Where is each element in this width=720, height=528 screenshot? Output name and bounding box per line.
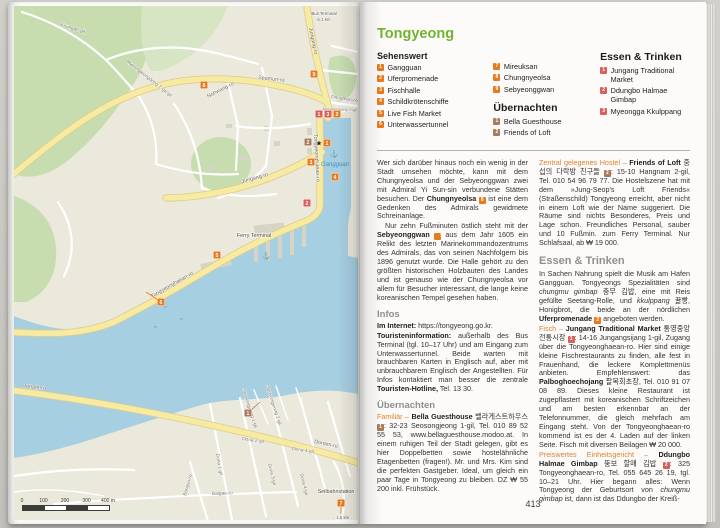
text-page: Tongyeong Sehenswert 1Gangguan2Uferprome… bbox=[360, 2, 706, 524]
scalebar-tick: 300 bbox=[82, 498, 90, 504]
text-run: 벨라게스트하우스 bbox=[473, 412, 528, 421]
text-run: Friends of Loft bbox=[629, 158, 681, 167]
svg-text:1: 1 bbox=[326, 141, 329, 147]
map-label: Bus Terminal bbox=[311, 11, 336, 16]
text-run: Touristeninformation: bbox=[377, 331, 451, 340]
legend-heading-sehenswert: Sehenswert bbox=[377, 51, 483, 61]
legend-item-label: Live Fish Market bbox=[388, 110, 442, 119]
legend-heading-essen: Essen & Trinken bbox=[600, 51, 690, 63]
legend-item-label: Jungang Traditional Market bbox=[611, 67, 690, 85]
section-heading: Übernachten bbox=[377, 400, 528, 411]
article-columns: Wer sich darüber hinaus noch ein wenig i… bbox=[377, 159, 690, 505]
legend-item-label: Chungnyeolsa bbox=[504, 74, 551, 83]
text-run: Palboghoechojang bbox=[539, 377, 603, 386]
text-run: https://tongyeong.go.kr. bbox=[416, 321, 493, 330]
scalebar-tick: 100 bbox=[39, 498, 47, 504]
map-marker-sight-2: 2 bbox=[333, 110, 341, 118]
sight-marker-icon: 8 bbox=[493, 74, 500, 81]
legend-item-label: Mireuksan bbox=[504, 63, 538, 72]
page-number: 413 bbox=[360, 499, 706, 509]
map-label: Ferry Terminal bbox=[237, 233, 271, 239]
scalebar-bar bbox=[22, 505, 110, 511]
map-marker-sight-9: 9 bbox=[310, 70, 318, 78]
map-marker-sight-1: ★1 bbox=[316, 139, 331, 147]
text-run: In Sachen Nahrung spielt die Musik am Ha… bbox=[539, 269, 690, 287]
legend-divider bbox=[377, 150, 690, 151]
legend-item: 2Ddungbo Halmae Gimbap bbox=[600, 87, 690, 105]
sight-marker-icon: 3 bbox=[377, 87, 384, 94]
paragraph: Nur zehn Fußminuten östlich steht mit de… bbox=[377, 222, 528, 302]
star-icon: ★ bbox=[316, 139, 322, 147]
map-marker-sight-3: 3 bbox=[307, 158, 315, 166]
legend-item: 3Myeongga Kkulppang bbox=[600, 108, 690, 117]
paragraph: In Sachen Nahrung spielt die Musik am Ha… bbox=[539, 270, 690, 324]
text-run: außerhalb des Bus Terminal (tgl. 10–17 U… bbox=[377, 331, 528, 385]
map-marker-food-1: 1 bbox=[315, 110, 323, 118]
article-column-right: Zentral gelegenes Hostel – Friends of Lo… bbox=[539, 159, 690, 505]
legend-col-essen: Essen & Trinken 1Jungang Traditional Mar… bbox=[600, 51, 690, 141]
legend-item: 3Fischhalle bbox=[377, 87, 483, 96]
svg-text:4: 4 bbox=[334, 175, 337, 181]
text-run: chungmu gimbap bbox=[539, 287, 597, 296]
map-label: Seilbahnstation bbox=[318, 489, 355, 495]
paragraph: Familiär – Bella Guesthouse 벨라게스트하우스 1: … bbox=[377, 413, 528, 493]
sight-marker-icon: 7 bbox=[493, 63, 500, 70]
text-run: 뚱보 할매 김밥 bbox=[598, 459, 663, 468]
map-marker-food-3: 3 bbox=[324, 110, 332, 118]
hotel-marker-icon: 1 bbox=[493, 118, 500, 125]
map-marker-sight-5: 5 bbox=[213, 251, 221, 259]
legend-item-label: Myeongga Kkulppang bbox=[611, 108, 682, 117]
page-stack-edge bbox=[706, 4, 716, 522]
paragraph: Fisch – Jungang Traditional Market 통영중앙전… bbox=[539, 325, 690, 450]
map-label: 6,1 km bbox=[317, 17, 331, 22]
legend-item: 5Live Fish Market bbox=[377, 110, 483, 119]
text-run: Bella Guesthouse bbox=[411, 412, 472, 421]
text-run: angeboten werden. bbox=[601, 314, 665, 323]
map-label: ↓ 1,5 km bbox=[333, 515, 350, 520]
legend-item-label: Bella Guesthouse bbox=[504, 118, 562, 127]
page-title: Tongyeong bbox=[377, 26, 690, 42]
map-marker-food-2: 2 bbox=[303, 199, 311, 207]
svg-text:2: 2 bbox=[307, 140, 310, 146]
svg-text:9: 9 bbox=[313, 72, 316, 78]
legend-item-label: Unterwassertunnel bbox=[388, 121, 449, 130]
legend-item-label: Fischhalle bbox=[388, 87, 421, 96]
legend-item: 1Bella Guesthouse bbox=[493, 118, 590, 127]
svg-text:3: 3 bbox=[310, 160, 313, 166]
svg-text:1: 1 bbox=[247, 411, 250, 417]
legend-item: 1Jungang Traditional Market bbox=[600, 67, 690, 85]
text-run: Zentral gelegenes Hostel – bbox=[539, 158, 629, 167]
legend-item-label: Uferpromenade bbox=[388, 75, 439, 84]
text-run: Touristen-Hotline, bbox=[377, 384, 438, 393]
food-marker-icon: 1 bbox=[600, 67, 607, 74]
sight-marker-icon: 6 bbox=[377, 121, 384, 128]
legend-item-label: Schildkrötenschiffe bbox=[388, 98, 449, 107]
sight-marker-icon: 4 bbox=[377, 98, 384, 105]
legend-col-uebernachten: 7Mireuksan8Chungnyeolsa9Sebyeonggwan Übe… bbox=[493, 51, 590, 141]
svg-text:2: 2 bbox=[306, 201, 309, 207]
svg-text:5: 5 bbox=[216, 253, 219, 259]
book-spread: ⚓⚓ Keungae-gilMyeongjeongdong 2-ga-gilNo… bbox=[0, 0, 720, 528]
text-run: Nur zehn Fußminuten östlich steht mit de… bbox=[385, 221, 528, 230]
legend-col-sehenswert: Sehenswert 1Gangguan2Uferpromenade3Fisch… bbox=[377, 51, 483, 141]
anchor-icon: ⚓ bbox=[330, 149, 339, 158]
map-marker-hotel-2: 2 bbox=[304, 138, 312, 146]
legend-item: 9Sebyeonggwan bbox=[493, 86, 590, 95]
legend-item: 4Schildkrötenschiffe bbox=[377, 98, 483, 107]
sight-marker-icon: 2 bbox=[377, 75, 384, 82]
legend-item: 8Chungnyeolsa bbox=[493, 74, 590, 83]
paragraph: Im Internet: https://tongyeong.go.kr. bbox=[377, 322, 528, 331]
svg-text:1: 1 bbox=[318, 112, 321, 118]
legend-item: 2Uferpromenade bbox=[377, 75, 483, 84]
map-marker-sight-4: 4 bbox=[331, 173, 339, 181]
text-run: Fisch – bbox=[539, 324, 566, 333]
map-label: Gangguan bbox=[321, 162, 350, 168]
svg-text:8: 8 bbox=[203, 83, 206, 89]
hotel-marker-icon: 2 bbox=[493, 129, 500, 136]
text-run: kkulppang bbox=[637, 296, 670, 305]
scalebar-tick: 200 bbox=[61, 498, 69, 504]
paragraph: Zentral gelegenes Hostel – Friends of Lo… bbox=[539, 159, 690, 248]
anchor-icon: ⚓ bbox=[262, 251, 271, 260]
article-column-left: Wer sich darüber hinaus noch ein wenig i… bbox=[377, 159, 528, 505]
text-run: Sebyeonggwan bbox=[377, 230, 430, 239]
section-heading: Essen & Trinken bbox=[539, 255, 690, 267]
food-marker-icon: 2 bbox=[600, 87, 607, 94]
legend-item-label: Sebyeonggwan bbox=[504, 86, 554, 95]
map-svg: ⚓⚓ Keungae-gilMyeongjeongdong 2-ga-gilNo… bbox=[14, 6, 358, 520]
text-run: : 32-23 Seosongjeong 1-gil, Tel. 010 89 … bbox=[377, 421, 528, 493]
map-marker-sight-8: 8 bbox=[200, 81, 208, 89]
svg-text:2: 2 bbox=[336, 112, 339, 118]
text-run: aus dem Jahr 1605 ein Relikt des letzten… bbox=[377, 230, 528, 302]
legend-item-label: Friends of Loft bbox=[504, 129, 551, 138]
legend-item-label: Gangguan bbox=[388, 64, 422, 73]
svg-text:7: 7 bbox=[340, 501, 343, 507]
legend-item-label: Ddungbo Halmae Gimbap bbox=[611, 87, 690, 105]
paragraph: Preiswertes Einheitsgericht – Ddungbo Ha… bbox=[539, 451, 690, 505]
sight-marker-icon: 5 bbox=[377, 110, 384, 117]
sight-marker-icon: 1 bbox=[377, 64, 384, 71]
map-scalebar: 0100200300400 m bbox=[22, 498, 132, 511]
legend-item: 6Unterwassertunnel bbox=[377, 121, 483, 130]
text-run: 팔복회초장, Tel. 010 91 07 08 89. Dieses klei… bbox=[539, 377, 690, 448]
text-run: : 15-10 Hangnam 2-gil, Tel. 010 54 96 79… bbox=[539, 167, 690, 247]
svg-text:3: 3 bbox=[327, 112, 330, 118]
section-heading: Infos bbox=[377, 309, 528, 320]
scalebar-tick: 400 m bbox=[101, 498, 115, 504]
text-run: Jungang Traditional Market bbox=[566, 324, 661, 333]
legend-item: 1Gangguan bbox=[377, 64, 483, 73]
legend-item: 2Friends of Loft bbox=[493, 129, 590, 138]
paragraph: Wer sich darüber hinaus noch ein wenig i… bbox=[377, 159, 528, 222]
scalebar-tick: 0 bbox=[21, 498, 24, 504]
paragraph: Touristeninformation: außerhalb des Bus … bbox=[377, 332, 528, 394]
text-run: Preiswertes Einheitsgericht – bbox=[539, 450, 658, 459]
legend-item: 7Mireuksan bbox=[493, 63, 590, 72]
tongyeong-map: ⚓⚓ Keungae-gilMyeongjeongdong 2-ga-gilNo… bbox=[14, 6, 358, 520]
text-run: Im Internet: bbox=[377, 321, 416, 330]
map-label: Balgae-ro bbox=[212, 490, 233, 497]
map-page: ⚓⚓ Keungae-gilMyeongjeongdong 2-ga-gilNo… bbox=[8, 2, 360, 524]
text-run: Uferpromenade bbox=[539, 314, 592, 323]
map-legend: Sehenswert 1Gangguan2Uferpromenade3Fisch… bbox=[377, 51, 690, 141]
text-run: Tel. 13 30. bbox=[438, 384, 473, 393]
text-run: Familiär – bbox=[377, 412, 411, 421]
svg-text:6: 6 bbox=[160, 300, 163, 306]
sight-marker-icon: 9 bbox=[493, 86, 500, 93]
food-marker-icon: 3 bbox=[600, 108, 607, 115]
legend-heading-uebernachten: Übernachten bbox=[493, 102, 590, 114]
scalebar-ticks: 0100200300400 m bbox=[22, 498, 132, 505]
text-run: Chungnyeolsa bbox=[427, 194, 477, 203]
